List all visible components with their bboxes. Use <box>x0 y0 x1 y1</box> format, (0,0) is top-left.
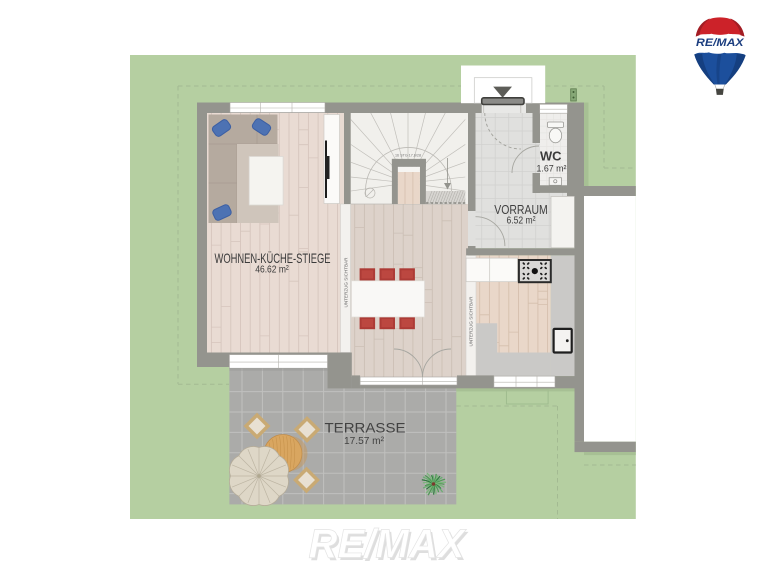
svg-text:16 STG 17,6/28: 16 STG 17,6/28 <box>395 153 422 158</box>
svg-text:17.57 m²: 17.57 m² <box>344 435 384 447</box>
svg-text:RE/MAX: RE/MAX <box>309 521 468 567</box>
svg-text:46.62 m²: 46.62 m² <box>255 264 289 276</box>
svg-text:UNTERZUG SICHTBAR: UNTERZUG SICHTBAR <box>469 296 474 347</box>
svg-text:1.67 m²: 1.67 m² <box>537 164 567 175</box>
svg-text:WC: WC <box>540 149 562 164</box>
svg-text:UNTERZUG SICHTBAR: UNTERZUG SICHTBAR <box>343 257 348 308</box>
svg-text:TERRASSE: TERRASSE <box>325 421 406 436</box>
svg-text:RE/MAX: RE/MAX <box>696 37 744 49</box>
svg-text:6.52 m²: 6.52 m² <box>507 216 537 227</box>
